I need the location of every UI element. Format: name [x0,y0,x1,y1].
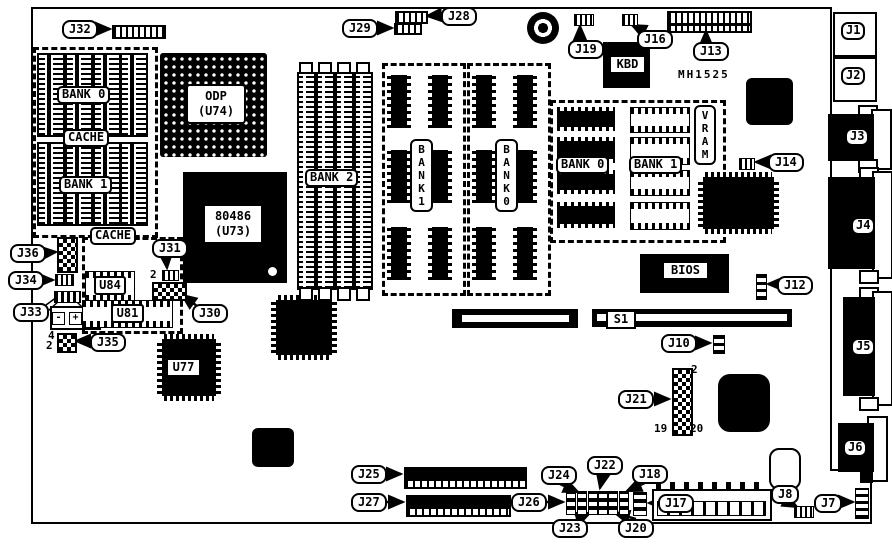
chip-video-controller [698,172,779,234]
vram-chip [557,107,615,131]
dram-chip [472,227,496,280]
callout-j33: J33 [13,303,49,322]
simm-clip [318,287,332,301]
callout-j24: J24 [541,466,577,485]
motherboard-diagram: BANK 0 CACHE BANK 1 J32 ODP (U74) 80486 … [0,0,892,549]
j31-pin2-label: 2 [150,269,157,280]
callout-j20: J20 [618,519,654,538]
dram-bank0-label: B A N K 0 [495,139,518,212]
jumper-j19 [574,14,594,26]
callout-j34: J34 [8,271,44,290]
jumper-j35 [57,333,77,353]
callout-j16: J16 [637,30,673,49]
speaker [527,12,559,44]
simm-clip [356,287,370,301]
cache-bank0-label: BANK 0 [57,86,110,104]
callout-j31: J31 [152,239,188,258]
callout-j17: J17 [658,494,694,513]
port-tab [859,397,879,411]
jumper-j26 [566,491,576,515]
chip-odp-label: ODP (U74) [186,84,246,124]
j35-pin2-label: 2 [46,340,53,351]
port-j1-label: J1 [841,22,865,40]
callout-j26: J26 [511,493,547,512]
cache-bank1-label: BANK 1 [59,176,112,194]
callout-j18: J18 [632,465,668,484]
vram-bank1-label: BANK 1 [629,156,682,174]
callout-j27: J27 [351,493,387,512]
battery-minus: - [52,312,65,325]
bank2-label: BANK 2 [305,169,358,187]
port-j4-label: J4 [851,217,875,235]
port-j2-label: J2 [841,67,865,85]
port-j5-label: J5 [851,338,875,356]
dram-chip [513,75,537,128]
cache-mid-label: CACHE [63,129,109,147]
port-j3-label: J3 [845,128,869,146]
board-part-number: MH1525 [678,68,730,81]
dram-chip [387,150,411,203]
port-j6-label: J6 [843,439,867,457]
port-tab [859,270,879,284]
callout-j36: J36 [10,244,46,263]
cache2-label: CACHE [90,227,136,245]
callout-j19: J19 [568,40,604,59]
chip-u81-label: U81 [111,304,144,323]
j21-pin20-label: 20 [690,423,703,434]
connector-j13 [667,11,752,33]
header-j30 [152,282,187,301]
jumper-j16 [622,14,638,26]
jumper-j22 [598,491,608,515]
j21-pin19-label: 19 [654,423,667,434]
port-tab-black [860,470,873,483]
callout-j30: J30 [192,304,228,323]
vram-socket [630,202,690,230]
callout-j23: J23 [552,519,588,538]
connector-j27 [406,495,511,517]
callout-j12: J12 [777,276,813,295]
dram-chip [472,75,496,128]
header-j36 [57,237,78,273]
connector-j32 [112,25,166,39]
callout-j29: J29 [342,19,378,38]
callout-j28: J28 [441,7,477,26]
jumper-j14 [739,158,755,170]
cache-socket [120,142,148,226]
simm-clip [299,287,313,301]
callout-j14: J14 [768,153,804,172]
chip-unlabeled-square [746,78,793,125]
jumper-j8 [794,506,814,518]
vram-label: V R A M [694,105,716,165]
callout-j7: J7 [814,494,842,513]
j21-pin2-label: 2 [691,364,698,375]
fuse [769,448,801,490]
jumper-j18 [619,491,629,515]
connector-j25 [404,467,527,489]
simm-clip [337,287,351,301]
jumper-j17-aux [633,492,647,516]
jumper-j23 [588,491,598,515]
callout-j8: J8 [771,485,799,504]
dram-chip [387,75,411,128]
callout-j21: J21 [618,390,654,409]
chip-u84-label: U84 [94,276,126,295]
chip-u77-label: U77 [167,359,200,376]
jumper-j34 [55,274,74,286]
cache-socket [120,53,148,137]
jumper-j24 [577,491,587,515]
jumper-j10 [713,335,725,354]
callout-j32: J32 [62,20,98,39]
jumper-j20 [608,491,618,515]
chip-unlabeled-square [252,428,294,467]
connector-j29 [394,23,422,35]
vram-chip [557,202,615,228]
slot-s1-label: S1 [606,310,636,329]
dram-bank1-label: B A N K 1 [410,139,433,212]
callout-j13: J13 [693,42,729,61]
dram-chip [472,150,496,203]
dram-chip [513,227,537,280]
jumper-j31 [162,270,179,281]
battery [54,291,81,303]
battery-plus: + [69,312,82,325]
vram-socket [630,107,690,133]
dram-chip [428,227,452,280]
chip-bios-label: BIOS [663,262,708,279]
jumper-j12 [756,274,767,300]
chip-cpu-label: 80486 (U73) [204,205,262,243]
cpu-pin1-dot [268,267,277,276]
chip-unlabeled-qfp [271,295,337,360]
callout-j25: J25 [351,465,387,484]
dram-chip [387,227,411,280]
dram-chip [428,75,452,128]
chip-kbd-label: KBD [610,56,645,73]
callout-j22: J22 [587,456,623,475]
slot-s1-key [636,314,787,321]
expansion-slot-key [462,315,569,322]
callout-j10: J10 [661,334,697,353]
chip-rounded [718,374,770,432]
header-j7 [855,488,869,519]
callout-j35: J35 [90,333,126,352]
vram-bank0-label: BANK 0 [556,156,609,174]
